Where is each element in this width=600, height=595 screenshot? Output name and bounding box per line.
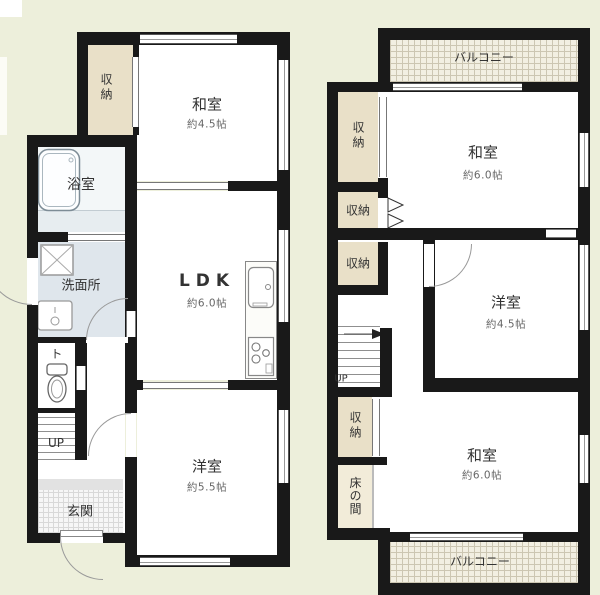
tokonoma-label: 床の間: [349, 477, 361, 516]
japanese-room-1f-label: 和室: [192, 94, 222, 115]
bath-label: 浴室: [67, 174, 95, 194]
wall: [327, 82, 338, 540]
western-room-1f-label: 洋室: [192, 456, 222, 477]
toilet-door: [76, 366, 86, 390]
western-room-2f-label: 洋室: [491, 292, 521, 313]
window: [140, 557, 230, 566]
wall: [327, 387, 392, 397]
wall: [125, 380, 143, 390]
closet2f-2-label: 収納: [346, 202, 370, 219]
wall: [38, 232, 68, 242]
floorplan-canvas: 収納 和室 約4.5帖 浴室 洗面所 ト UP 玄関 LDK 約6.0帖 洋室 …: [0, 0, 600, 595]
tokonoma-edge-line: [372, 465, 374, 528]
window: [278, 410, 289, 483]
japanese-room-2f-bottom-size: 約6.0帖: [462, 468, 502, 483]
window: [140, 34, 237, 44]
wall: [27, 135, 137, 147]
wall: [133, 126, 139, 135]
closet-sliding-door: [379, 97, 387, 177]
toilet-icon: [44, 362, 70, 406]
stairs-up-label-2f: UP: [334, 374, 347, 385]
wall: [423, 378, 590, 392]
stairs-up-label-1f: UP: [48, 436, 64, 450]
wall: [125, 135, 137, 413]
balcony-bottom-label: バルコニー: [450, 553, 510, 570]
wall: [27, 408, 87, 413]
wall: [77, 32, 88, 147]
washbasin-icon: [37, 300, 73, 331]
japanese-room-2f-top-size: 約6.0帖: [463, 168, 503, 183]
wall: [228, 380, 277, 390]
window: [410, 533, 523, 541]
entrance-door-leaf: [60, 530, 103, 537]
entrance-label: 玄関: [67, 501, 93, 520]
bath-folding-door: [68, 234, 125, 241]
washroom-label: 洗面所: [61, 275, 100, 294]
japanese-room-2f-bottom-label: 和室: [467, 445, 497, 466]
wall: [378, 28, 590, 40]
window: [579, 245, 589, 330]
bifold-door-icon: [387, 197, 405, 229]
sliding-door: [137, 182, 228, 190]
window: [278, 60, 289, 170]
closet-sliding-door: [372, 399, 380, 456]
window: [278, 230, 289, 322]
japanese-room-1f-size: 約4.5帖: [187, 117, 227, 132]
wall: [380, 328, 392, 392]
window: [393, 83, 522, 91]
ldk-size: 約6.0帖: [187, 296, 227, 311]
wall: [378, 178, 388, 198]
closet-sliding-door: [132, 57, 139, 127]
washing-machine-pan-icon: [40, 244, 74, 276]
japanese-room-2f-top-label: 和室: [468, 142, 498, 163]
toilet-label: ト: [50, 348, 62, 363]
window: [579, 435, 589, 483]
closet2f-1-label: 収納: [352, 121, 364, 151]
closet-label-1f: 収納: [100, 73, 112, 103]
wall: [378, 583, 590, 595]
closet2f-4-label: 収納: [349, 411, 361, 441]
wall: [75, 343, 87, 460]
window: [579, 133, 589, 187]
balcony-top-label: バルコニー: [454, 49, 514, 66]
western-room-2f-size: 約4.5帖: [486, 317, 526, 332]
sliding-door: [143, 382, 228, 389]
wall: [378, 242, 388, 295]
kitchen-unit-icon: [245, 261, 279, 380]
western-room-1f-size: 約5.5帖: [187, 480, 227, 495]
wall: [125, 457, 137, 567]
sliding-door: [546, 229, 576, 238]
wall: [228, 181, 277, 191]
closet2f-3-label: 収納: [346, 255, 370, 272]
ldk-label: LDK: [179, 271, 235, 291]
wall: [327, 457, 387, 465]
